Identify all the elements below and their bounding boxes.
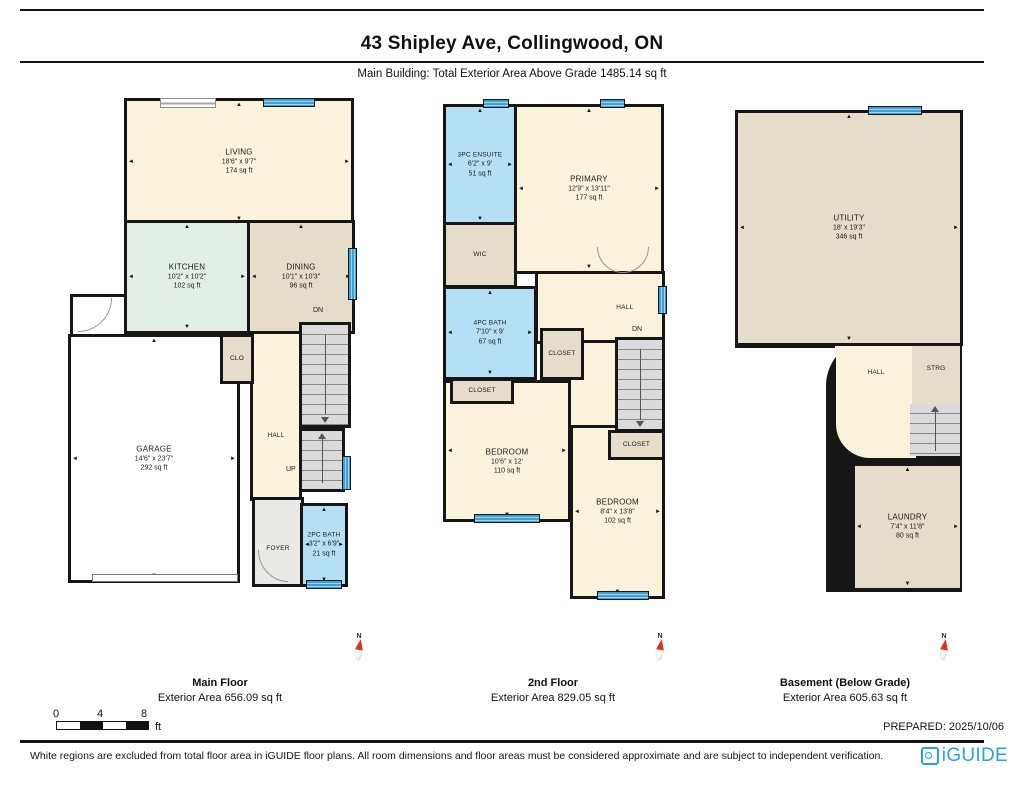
window: [342, 456, 351, 490]
room-label: DINING 10'1" x 10'3" 96 sq ft: [250, 263, 352, 292]
room-label: 4PC BATH 7'10" x 9' 67 sq ft: [446, 320, 534, 347]
stair-direction-line: [640, 349, 641, 420]
room-3pc-ensuite: 3PC ENSUITE 6'2" x 9' 51 sq ft: [443, 104, 517, 226]
room-utility: UTILITY 18' x 19'3" 346 sq ft: [735, 110, 963, 346]
dimension-arrow: [905, 467, 911, 473]
dimension-arrow: [527, 330, 533, 336]
dimension-arrow: [184, 324, 190, 330]
stairs-up-label: UP: [922, 459, 932, 466]
dimension-arrow: [477, 108, 483, 114]
iguide-logo-icon: [921, 747, 939, 765]
window: [263, 98, 315, 107]
scale-segment: [103, 722, 126, 729]
dimension-arrow: [447, 162, 453, 168]
window: [868, 106, 922, 115]
room-closet-right: CLOSET: [608, 430, 665, 460]
window: [474, 514, 540, 523]
stairs-dn-label: DN: [632, 326, 642, 333]
room-strg: STRG: [912, 346, 960, 406]
dimension-arrow: [447, 448, 453, 454]
dimension-arrow: [846, 114, 852, 120]
dimension-arrow: [230, 456, 236, 462]
scale-bar: 0 4 8 ft: [56, 708, 149, 730]
dimension-arrow: [321, 507, 327, 513]
scale-tick: 0: [53, 708, 59, 720]
dimension-arrow: [518, 186, 524, 192]
room-label: 3PC ENSUITE 6'2" x 9' 51 sq ft: [446, 152, 514, 179]
room-4pc-bath: 4PC BATH 7'10" x 9' 67 sq ft: [443, 286, 537, 380]
stairs-down-2nd: [615, 337, 665, 432]
scale-unit: ft: [155, 721, 161, 733]
iguide-logo-text: iGUIDE: [942, 745, 1008, 767]
room-2pc-bath: 2PC BATH 3'2" x 6'9" 21 sq ft: [300, 503, 348, 587]
room-hall-basement: HALL: [836, 346, 916, 458]
floor-plan-page: 43 Shipley Ave, Collingwood, ON Main Bui…: [0, 0, 1024, 791]
window: [306, 580, 342, 589]
room-label: HALL: [253, 431, 299, 439]
dimension-arrow: [487, 290, 493, 296]
scale-bar-segments: [56, 721, 149, 730]
room-label: CLOSET: [453, 387, 511, 395]
dimension-arrow: [128, 274, 134, 280]
dimension-arrow: [654, 186, 660, 192]
dimension-arrow: [344, 159, 350, 165]
room-kitchen: KITCHEN 10'2" x 10'2" 102 sq ft: [124, 220, 250, 334]
dimension-arrow: [487, 370, 493, 376]
room-label: STRG: [912, 365, 960, 373]
window: [597, 591, 649, 600]
scale-segment: [57, 722, 80, 729]
room-label: PRIMARY 12'9" x 13'11" 177 sq ft: [517, 175, 661, 204]
room-label: CLOSET: [611, 441, 662, 449]
compass-icon: N: [344, 633, 374, 659]
room-label: CLOSET: [543, 350, 581, 358]
room-label: KITCHEN 10'2" x 10'2" 102 sq ft: [127, 263, 247, 292]
prepared-date: PREPARED: 2025/10/06: [883, 721, 1004, 733]
compass-dial: [357, 639, 361, 660]
stairs-dn-label: DN: [313, 307, 323, 314]
iguide-logo: iGUIDE: [921, 745, 1008, 767]
room-dining: DINING 10'1" x 10'3" 96 sq ft: [247, 220, 355, 334]
window: [600, 99, 625, 108]
stair-arrow-up: [931, 406, 939, 412]
caption-main-floor: Main Floor Exterior Area 656.09 sq ft: [90, 676, 350, 706]
stair-arrow-up: [318, 433, 326, 439]
dimension-arrow: [586, 264, 592, 270]
room-label: GARAGE 14'6" x 23'7" 292 sq ft: [71, 444, 237, 473]
dimension-arrow: [905, 581, 911, 587]
room-label: BEDROOM 10'6" x 12' 110 sq ft: [446, 448, 568, 477]
room-label: CLO: [223, 355, 251, 363]
dimension-arrow: [240, 274, 246, 280]
compass-needle-south: [353, 649, 363, 661]
compass-needle-south: [938, 649, 948, 661]
dimension-arrow: [507, 162, 513, 168]
stairs-up-basement: [910, 404, 960, 456]
page-subtitle: Main Building: Total Exterior Area Above…: [0, 68, 1024, 80]
stair-direction-line: [935, 409, 936, 451]
footer-rule: [20, 740, 984, 743]
dimension-arrow: [447, 330, 453, 336]
stairs-down-main: [299, 322, 351, 428]
room-label: BEDROOM 8'4" x 13'8" 102 sq ft: [573, 498, 662, 527]
scale-segment: [126, 722, 148, 729]
compass-icon: N: [645, 633, 675, 659]
dimension-arrow: [236, 102, 242, 108]
dimension-arrow: [151, 338, 157, 344]
dimension-arrow: [655, 509, 661, 515]
dimension-arrow: [574, 509, 580, 515]
room-label: LIVING 18'6" x 9'7" 174 sq ft: [127, 148, 351, 177]
page-title: 43 Shipley Ave, Collingwood, ON: [0, 33, 1024, 55]
stairs-up-label: UP: [286, 466, 296, 473]
dimension-arrow: [586, 108, 592, 114]
room-garage: GARAGE 14'6" x 23'7" 292 sq ft: [68, 334, 240, 583]
room-label: LAUNDRY 7'4" x 11'8" 80 sq ft: [855, 513, 960, 542]
caption-2nd-floor: 2nd Floor Exterior Area 829.05 sq ft: [423, 676, 683, 706]
stair-arrow-down: [636, 421, 644, 427]
dimension-arrow: [128, 159, 134, 165]
scale-tick: 8: [141, 708, 147, 720]
dimension-arrow: [251, 274, 257, 280]
compass-needle-south: [654, 649, 664, 661]
room-wic: WIC: [443, 222, 517, 288]
compass-icon: N: [929, 633, 959, 659]
dimension-arrow: [304, 542, 310, 548]
dimension-arrow: [298, 224, 304, 230]
room-closet-left: CLOSET: [450, 378, 514, 404]
room-living: LIVING 18'6" x 9'7" 174 sq ft: [124, 98, 354, 226]
dimension-arrow: [561, 448, 567, 454]
room-label: WIC: [446, 251, 514, 259]
stair-arrow-down: [321, 417, 329, 423]
title-divider: [20, 61, 984, 63]
caption-basement: Basement (Below Grade) Exterior Area 605…: [715, 676, 975, 706]
compass-dial: [942, 639, 946, 660]
garage-door: [92, 574, 238, 582]
room-label: UTILITY 18' x 19'3" 346 sq ft: [738, 214, 960, 243]
dimension-arrow: [953, 524, 959, 530]
room-closet-mid: CLOSET: [540, 328, 584, 380]
room-hall-main: HALL: [250, 331, 302, 501]
scale-tick: 4: [97, 708, 103, 720]
dimension-arrow: [953, 225, 959, 231]
dimension-arrow: [338, 542, 344, 548]
page-top-rule: [20, 9, 984, 11]
dimension-arrow: [856, 524, 862, 530]
compass-dial: [658, 639, 662, 660]
stair-direction-line: [325, 335, 326, 415]
room-clo: CLO: [220, 334, 254, 384]
stair-direction-line: [322, 437, 323, 483]
room-label: HALL: [588, 303, 662, 311]
room-label: HALL: [836, 369, 916, 377]
window: [160, 98, 216, 108]
stairs-up-main: [299, 428, 345, 492]
room-laundry: LAUNDRY 7'4" x 11'8" 80 sq ft: [855, 466, 960, 588]
dimension-arrow: [184, 224, 190, 230]
dimension-arrow: [739, 225, 745, 231]
scale-ticks: 0 4 8: [56, 708, 149, 721]
window: [348, 248, 357, 300]
dimension-arrow: [72, 456, 78, 462]
window: [483, 99, 509, 108]
scale-segment: [80, 722, 103, 729]
window: [658, 286, 667, 314]
footer-disclaimer: White regions are excluded from total fl…: [30, 750, 883, 762]
dimension-arrow: [846, 336, 852, 342]
